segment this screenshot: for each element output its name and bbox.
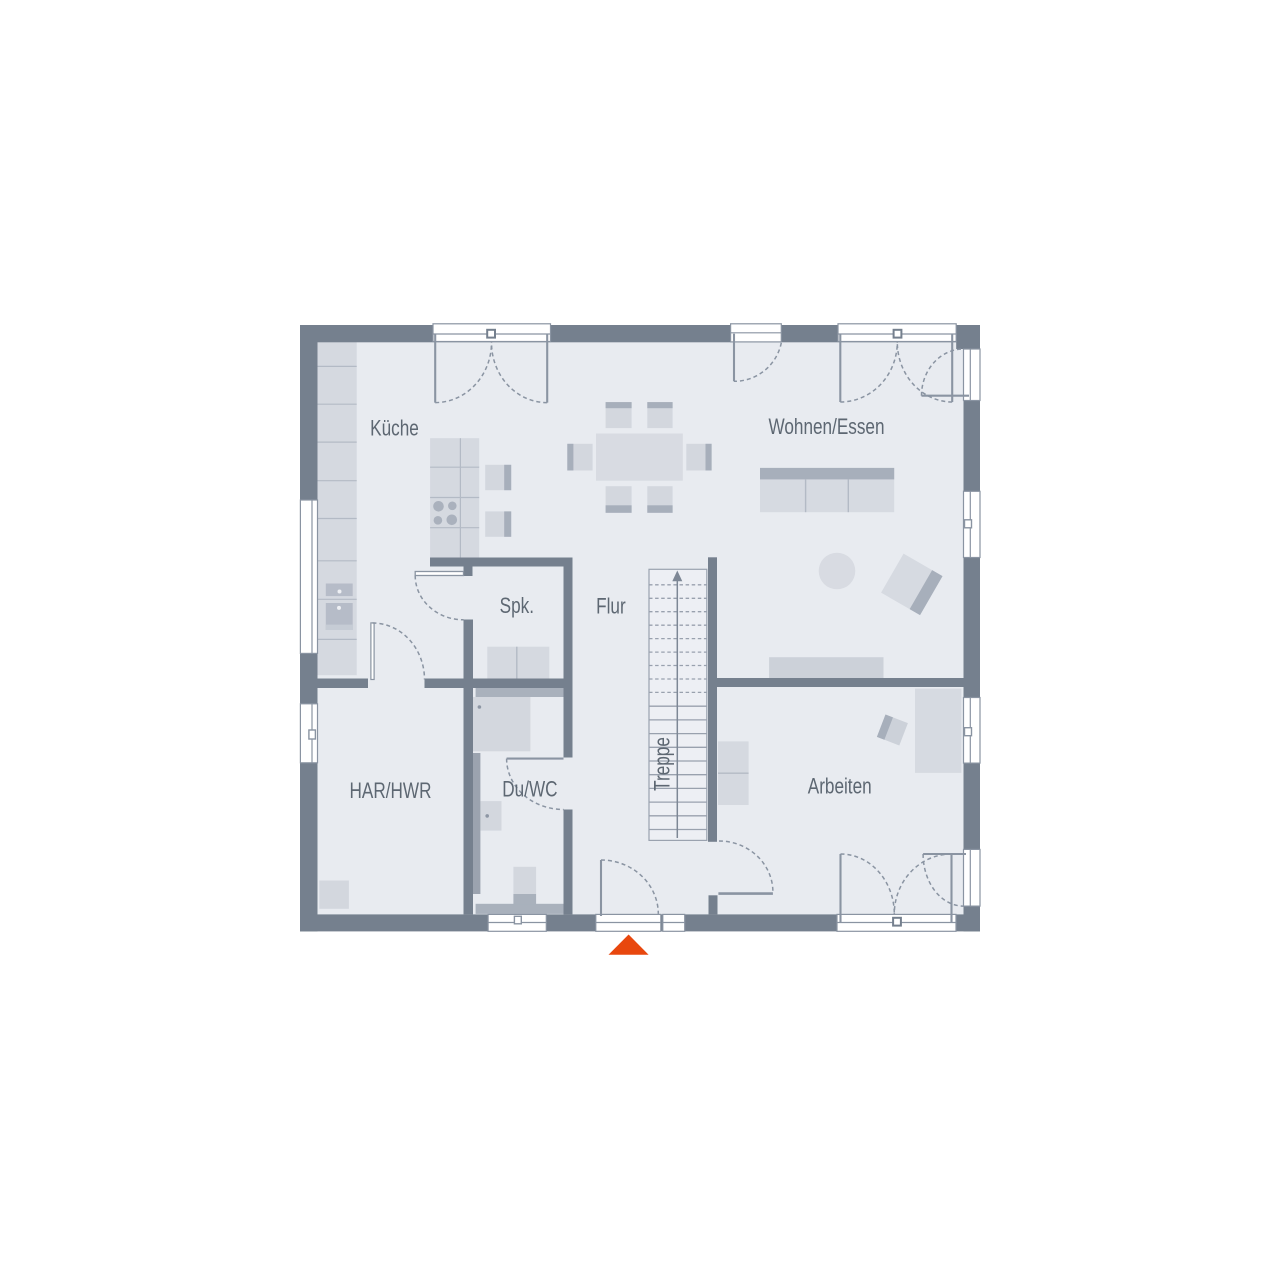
- svg-text:Spk.: Spk.: [500, 594, 534, 619]
- svg-text:Arbeiten: Arbeiten: [808, 775, 872, 800]
- svg-text:Du/WC: Du/WC: [502, 778, 557, 803]
- svg-text:HAR/HWR: HAR/HWR: [350, 779, 432, 804]
- svg-text:Flur: Flur: [596, 595, 626, 620]
- svg-text:Küche: Küche: [370, 417, 419, 442]
- svg-text:Wohnen/Essen: Wohnen/Essen: [768, 415, 884, 440]
- svg-text:Treppe: Treppe: [651, 737, 676, 791]
